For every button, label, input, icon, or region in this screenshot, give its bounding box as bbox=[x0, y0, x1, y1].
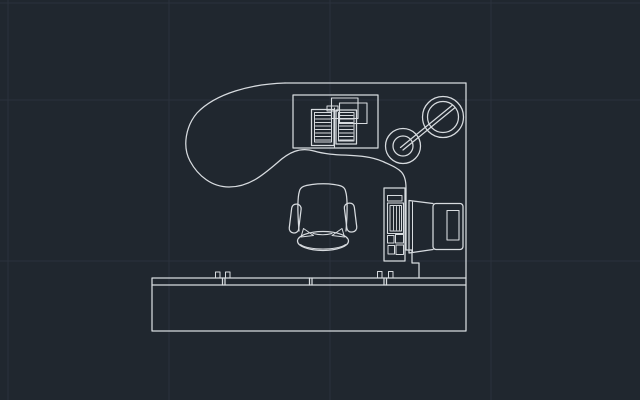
cad-model-space[interactable] bbox=[0, 0, 640, 400]
desk-lamp[interactable] bbox=[386, 97, 464, 164]
cpu-tower[interactable] bbox=[384, 188, 405, 261]
office-chair[interactable] bbox=[289, 184, 358, 251]
grid-lines bbox=[0, 0, 640, 400]
cad-drawing-canvas[interactable] bbox=[0, 0, 640, 400]
credenza[interactable] bbox=[152, 272, 466, 332]
monitor[interactable] bbox=[409, 201, 463, 254]
document-tray[interactable] bbox=[293, 95, 378, 148]
